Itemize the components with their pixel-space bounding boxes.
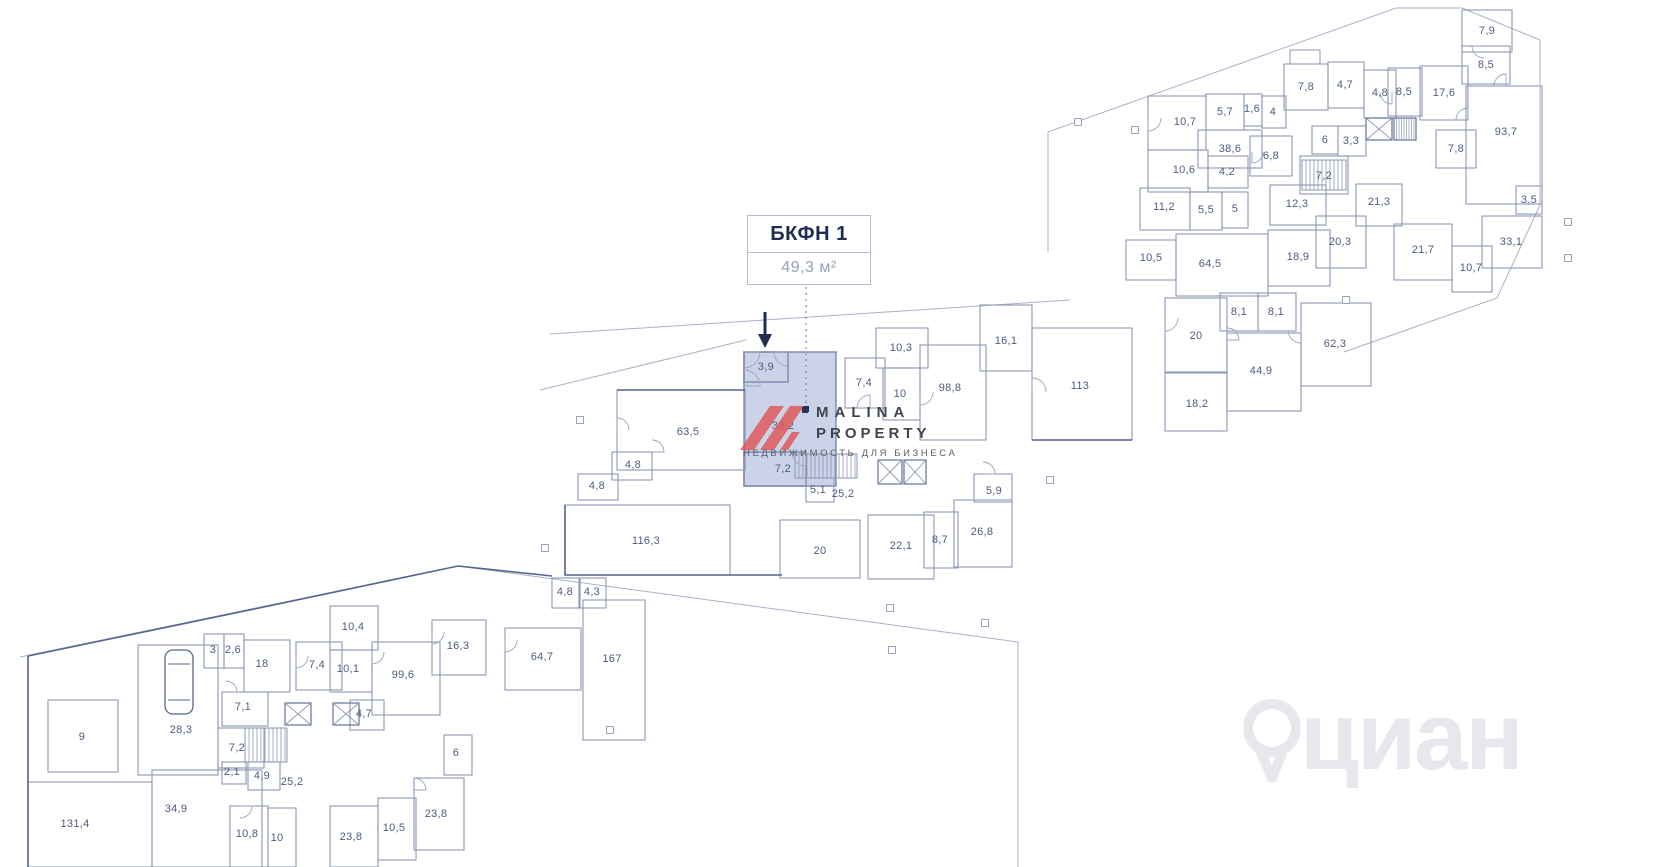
column-marker <box>607 727 614 734</box>
brand-tagline: НЕДВИЖИМОСТЬ ДЛЯ БИЗНЕСА <box>743 448 957 459</box>
room-wall <box>372 642 440 715</box>
door-arc-icon <box>414 778 426 790</box>
unit-area: 49,3 м² <box>748 252 870 284</box>
room-wall <box>204 634 224 668</box>
door-arc-icon <box>652 440 664 452</box>
room-wall <box>1250 136 1292 176</box>
door-arc-icon <box>1148 118 1161 131</box>
room-wall <box>268 808 296 867</box>
elevator-icon <box>333 703 359 725</box>
column-marker <box>577 417 584 424</box>
room-wall <box>617 390 745 470</box>
elevator-icon <box>285 703 311 725</box>
room-wall <box>1316 216 1366 268</box>
elevator-icon <box>904 460 926 484</box>
door-arc-icon <box>372 652 384 664</box>
door-arc-icon <box>983 462 995 474</box>
room-wall <box>330 606 378 650</box>
balcony-outline <box>1290 50 1320 64</box>
door-arc-icon <box>1252 152 1263 163</box>
room-wall <box>1148 150 1208 192</box>
door-arc-icon <box>1032 378 1046 392</box>
down-arrow-icon <box>758 312 772 348</box>
site-boundary-line <box>458 566 1018 867</box>
room-wall <box>1032 328 1132 440</box>
brand-line2: PROPERTY <box>816 425 931 442</box>
room-wall <box>1208 156 1248 188</box>
room-wall <box>1284 64 1328 110</box>
column-marker <box>887 605 894 612</box>
room-wall <box>1190 192 1222 230</box>
column-marker <box>1075 119 1082 126</box>
column-marker <box>1132 127 1139 134</box>
room-wall <box>1270 185 1326 225</box>
door-arc-icon <box>1227 328 1239 340</box>
room-wall <box>954 500 1012 567</box>
room-wall <box>1126 240 1176 280</box>
door-arc-icon <box>240 806 252 818</box>
stairs-icon <box>245 728 287 762</box>
room-wall <box>414 778 464 850</box>
room-wall <box>28 782 152 867</box>
room-wall <box>1220 293 1258 331</box>
column-marker <box>1343 297 1350 304</box>
room-wall <box>1148 96 1206 150</box>
room-wall <box>1222 192 1248 228</box>
elevator-icon <box>1394 118 1416 140</box>
room-wall <box>505 628 581 690</box>
elevator-icon <box>878 460 902 484</box>
column-marker <box>1047 477 1054 484</box>
door-arc-icon <box>617 418 629 430</box>
door-arc-icon <box>1288 330 1301 343</box>
brand-line1: MALINA <box>816 404 910 421</box>
room-wall <box>974 474 1012 502</box>
room-wall <box>583 600 645 740</box>
column-marker <box>982 620 989 627</box>
elevator-icon <box>1366 118 1392 140</box>
room-wall <box>1388 68 1422 116</box>
room-wall <box>1268 230 1330 286</box>
room-wall <box>1227 333 1301 411</box>
room-wall <box>1176 234 1268 296</box>
column-marker <box>1565 219 1572 226</box>
door-arc-icon <box>505 640 517 652</box>
room-wall <box>330 806 378 867</box>
room-wall <box>48 700 118 772</box>
room-wall <box>224 634 244 668</box>
unit-name: БКФН 1 <box>748 216 870 252</box>
cluster-outline <box>565 505 782 575</box>
room-wall <box>1165 373 1227 431</box>
room-wall <box>1140 188 1190 230</box>
room-wall <box>1452 246 1492 292</box>
room-wall <box>244 640 290 692</box>
room-wall <box>378 798 416 860</box>
column-marker <box>889 647 896 654</box>
room-wall <box>780 520 860 578</box>
room-wall <box>580 578 606 608</box>
room-wall <box>1206 94 1244 130</box>
room-wall <box>980 305 1032 371</box>
column-marker <box>542 545 549 552</box>
door-arc-icon <box>296 656 308 668</box>
door-arc-icon <box>1380 92 1392 104</box>
unit-callout[interactable]: БКФН 1 49,3 м² <box>747 215 871 285</box>
room-wall <box>1436 130 1476 168</box>
room-wall <box>1312 126 1338 154</box>
room-wall <box>222 762 246 784</box>
room-wall <box>552 578 579 608</box>
room-wall <box>1258 293 1296 331</box>
floor-plan-canvas: циан 10,75,71,6438,610,64,26,87,84,74,88… <box>0 0 1667 867</box>
room-wall <box>1244 94 1262 126</box>
room-wall <box>1165 298 1227 372</box>
room-wall <box>1328 62 1364 108</box>
room-wall <box>1262 96 1286 128</box>
room-wall <box>330 650 372 692</box>
room-wall <box>1356 184 1402 226</box>
door-arc-icon <box>1165 318 1178 331</box>
room-wall <box>1300 156 1348 194</box>
site-boundary-line <box>540 340 746 390</box>
malina-property-watermark: MALINA PROPERTY НЕДВИЖИМОСТЬ ДЛЯ БИЗНЕСА <box>738 401 938 461</box>
room-wall <box>444 735 472 775</box>
car-icon <box>165 650 193 714</box>
room-wall <box>1394 224 1452 280</box>
room-wall <box>1482 216 1542 268</box>
room-wall <box>1301 303 1371 386</box>
malina-logo-icon <box>738 404 810 452</box>
room-wall <box>1338 126 1366 156</box>
room-wall <box>924 512 958 568</box>
door-arc-icon <box>226 681 237 692</box>
column-marker <box>1565 255 1572 262</box>
room-wall <box>565 505 730 575</box>
room-wall <box>222 692 268 726</box>
room-wall <box>1420 66 1468 120</box>
watermark-bullet <box>802 407 808 413</box>
